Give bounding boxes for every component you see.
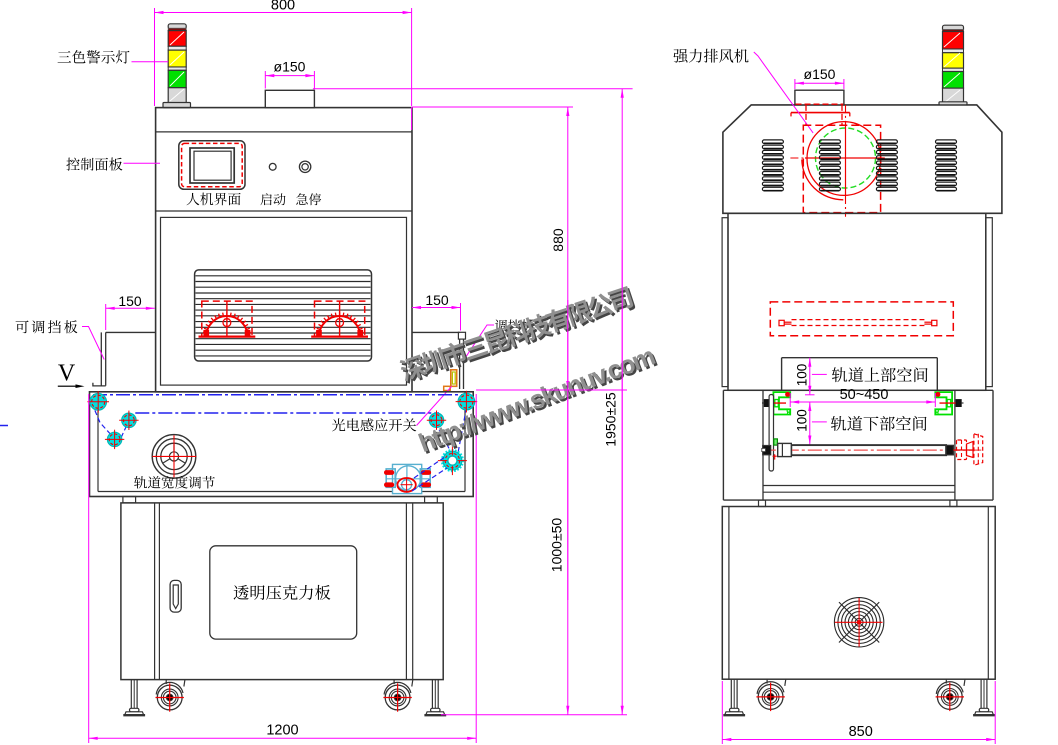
svg-text:850: 850 [849, 724, 873, 740]
svg-text:100: 100 [795, 364, 810, 387]
svg-text:ø150: ø150 [274, 59, 306, 75]
svg-text:100: 100 [795, 409, 810, 432]
svg-text:1200: 1200 [266, 723, 298, 739]
svg-text:150: 150 [118, 293, 142, 309]
svg-text:ø150: ø150 [804, 66, 836, 82]
svg-text:1950±25: 1950±25 [603, 392, 619, 447]
svg-text:50~450: 50~450 [840, 387, 889, 403]
svg-text:880: 880 [550, 228, 566, 252]
svg-text:V: V [58, 361, 76, 387]
svg-text:1000±50: 1000±50 [549, 518, 565, 573]
svg-text:150: 150 [425, 292, 449, 308]
svg-text:800: 800 [271, 0, 295, 14]
